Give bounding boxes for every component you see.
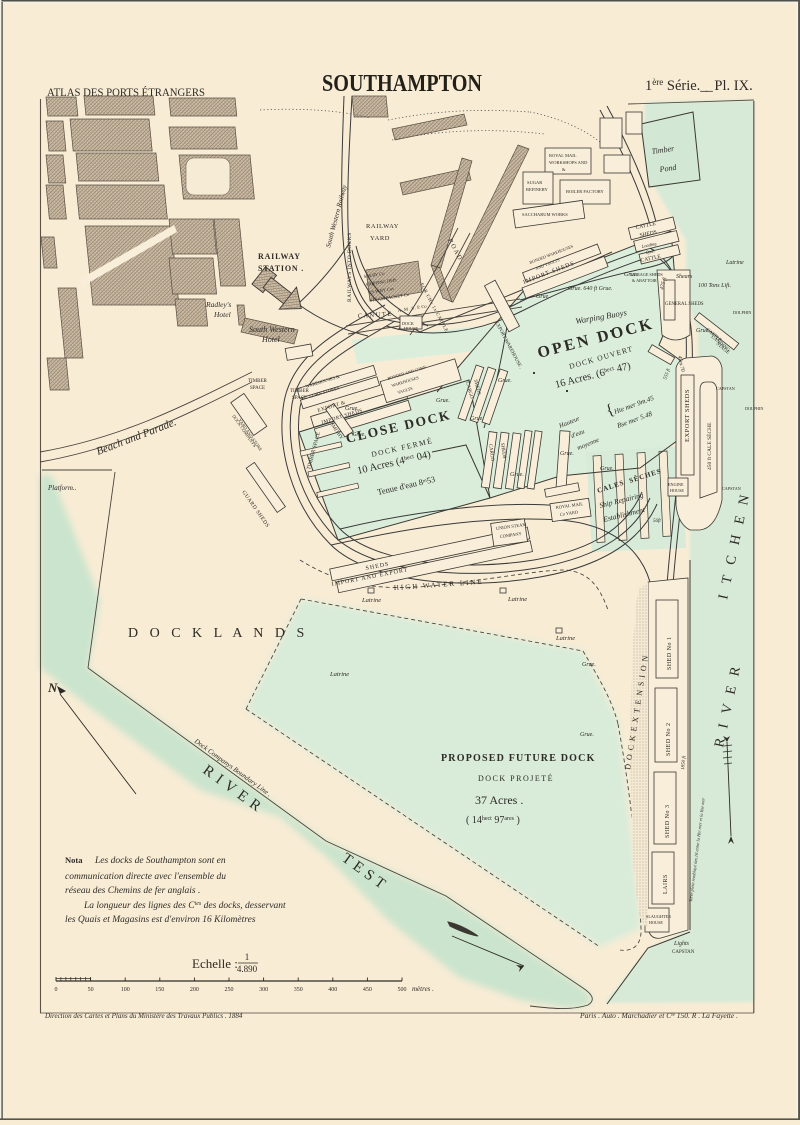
svg-text:TIMBER: TIMBER (290, 389, 310, 394)
svg-text:450 ft CALE SÈCHE: 450 ft CALE SÈCHE (705, 422, 713, 470)
svg-text:SLAUGHTER: SLAUGHTER (646, 914, 671, 919)
svg-text:CAPSTAN: CAPSTAN (722, 486, 741, 491)
svg-text:Paris . Auto . Marchadier et C: Paris . Auto . Marchadier et Cie 150. R … (579, 1011, 738, 1020)
svg-text:HOUSE: HOUSE (404, 326, 418, 331)
svg-text:0: 0 (55, 987, 58, 993)
svg-text:Grue.: Grue. (470, 416, 484, 422)
svg-text:les Quais et Magasins est d'en: les Quais et Magasins est d'environ 16 K… (65, 915, 256, 925)
svg-text:Echelle :: Echelle : (192, 956, 238, 971)
svg-text:Grue.: Grue. (498, 378, 512, 384)
svg-text:Grue.: Grue. (345, 406, 359, 412)
svg-text:Latrine: Latrine (507, 596, 527, 603)
svg-text:&: & (562, 167, 566, 172)
svg-text:Les docks de Southampton sont: Les docks de Southampton sont en (94, 856, 226, 866)
svg-text:mètres .: mètres . (412, 985, 434, 993)
svg-text:Latrine: Latrine (361, 597, 381, 604)
svg-text:SPACE: SPACE (250, 386, 265, 391)
svg-text:500: 500 (398, 987, 407, 993)
svg-text:Grue. 640 ft Grue.: Grue. 640 ft Grue. (568, 285, 613, 292)
svg-text:ROYAL MAIL: ROYAL MAIL (549, 153, 577, 158)
svg-text:Hotel: Hotel (213, 310, 231, 319)
svg-text:Lights: Lights (673, 941, 690, 947)
svg-text:YARD: YARD (370, 235, 390, 242)
svg-text:Grue.: Grue. (536, 294, 550, 300)
svg-text:N: N (47, 680, 58, 695)
svg-text:Direction des Cartes et Plans: Direction des Cartes et Plans du Ministè… (44, 1012, 243, 1020)
svg-text:1: 1 (245, 952, 250, 962)
svg-text:400: 400 (328, 987, 337, 993)
svg-text:REFINERY: REFINERY (526, 187, 549, 192)
svg-text:Grue.: Grue. (600, 466, 614, 472)
svg-text:communication directe avec l'e: communication directe avec l'ensemble du (65, 872, 226, 882)
svg-text:DOCK PROJETÉ: DOCK PROJETÉ (478, 773, 554, 783)
svg-text:Grue.: Grue. (624, 272, 638, 278)
svg-text:RAILWAYS INTO DOCKS: RAILWAYS INTO DOCKS (347, 232, 353, 302)
svg-text:GENERAL SHEDS: GENERAL SHEDS (665, 302, 704, 307)
svg-text:Grue.: Grue. (510, 472, 524, 478)
svg-text:CAPSTAN: CAPSTAN (672, 950, 695, 955)
svg-text:& ABATTOIR: & ABATTOIR (632, 278, 657, 283)
svg-text:LAIRS: LAIRS (663, 874, 669, 894)
svg-text:Grue.: Grue. (436, 398, 450, 404)
svg-text:Shears: Shears (676, 274, 693, 280)
svg-text:SUGAR: SUGAR (527, 180, 542, 185)
svg-text:Hotel: Hotel (261, 335, 281, 344)
svg-text:ATLAS DES PORTS ÉTRANGERS: ATLAS DES PORTS ÉTRANGERS (47, 85, 205, 99)
svg-text:RAILWAY: RAILWAY (258, 252, 301, 261)
svg-text:Latrine: Latrine (329, 671, 349, 678)
svg-text:Grue.: Grue. (582, 662, 596, 668)
svg-text:37 Acres .: 37 Acres . (475, 793, 523, 807)
svg-text:250: 250 (225, 987, 234, 993)
svg-text:300: 300 (259, 987, 268, 993)
svg-text:150: 150 (155, 987, 164, 993)
svg-text:ENGINE: ENGINE (668, 482, 684, 487)
svg-text:SOUTHAMPTON: SOUTHAMPTON (322, 70, 482, 97)
svg-text:réseau des Chemins de fer angl: réseau des Chemins de fer anglais . (65, 885, 200, 896)
svg-text:WORKSHOPS AND: WORKSHOPS AND (549, 160, 588, 165)
svg-text:Nota: Nota (65, 855, 83, 865)
svg-text:HOUSE: HOUSE (670, 488, 684, 493)
svg-text:South Western: South Western (249, 325, 295, 334)
svg-text:SHED No 3: SHED No 3 (665, 804, 671, 838)
svg-text:DOLPHIN: DOLPHIN (745, 406, 763, 411)
svg-text:200: 200 (190, 987, 199, 993)
svg-text:100: 100 (121, 987, 130, 993)
svg-text:Grue.: Grue. (580, 732, 594, 738)
svg-text:La longueur des lignes des Cie: La longueur des lignes des Cies des dock… (83, 901, 286, 911)
svg-text:Grue.: Grue. (352, 432, 366, 438)
svg-text:Latrine: Latrine (725, 260, 744, 266)
svg-text:PROPOSED FUTURE DOCK: PROPOSED FUTURE DOCK (441, 753, 596, 764)
svg-text:100 Tons Lift.: 100 Tons Lift. (698, 282, 731, 289)
svg-text:Platform..: Platform.. (47, 484, 77, 492)
svg-text:RAILWAY: RAILWAY (366, 223, 399, 230)
svg-text:Grue.: Grue. (560, 451, 574, 457)
svg-text:DOLPHIN: DOLPHIN (733, 310, 751, 315)
svg-text:HOUSE: HOUSE (649, 920, 663, 925)
svg-text:50: 50 (88, 987, 94, 993)
svg-text:BOILER FACTORY: BOILER FACTORY (566, 189, 604, 194)
svg-text:TIMBER: TIMBER (248, 379, 268, 384)
svg-text:450: 450 (363, 987, 372, 993)
svg-text:56ft: 56ft (653, 519, 661, 524)
svg-text:350: 350 (294, 987, 303, 993)
svg-text:SPACE: SPACE (292, 396, 307, 401)
svg-text:EXPORT SHEDS: EXPORT SHEDS (684, 389, 691, 442)
svg-text:Grue.: Grue. (696, 328, 710, 334)
svg-text:CAPSTAN: CAPSTAN (716, 386, 735, 391)
svg-text:Radley's: Radley's (205, 300, 231, 309)
svg-text:STATION .: STATION . (258, 264, 304, 273)
svg-text:4.890: 4.890 (237, 964, 258, 974)
svg-text:SHED No 2: SHED No 2 (666, 722, 672, 756)
svg-text:SHED No 1: SHED No 1 (667, 636, 673, 670)
svg-text:SACCHARUM WORKS: SACCHARUM WORKS (522, 212, 568, 217)
svg-text:Latrine: Latrine (555, 635, 575, 642)
svg-text:D O C K L A N D S: D O C K L A N D S (128, 626, 308, 641)
